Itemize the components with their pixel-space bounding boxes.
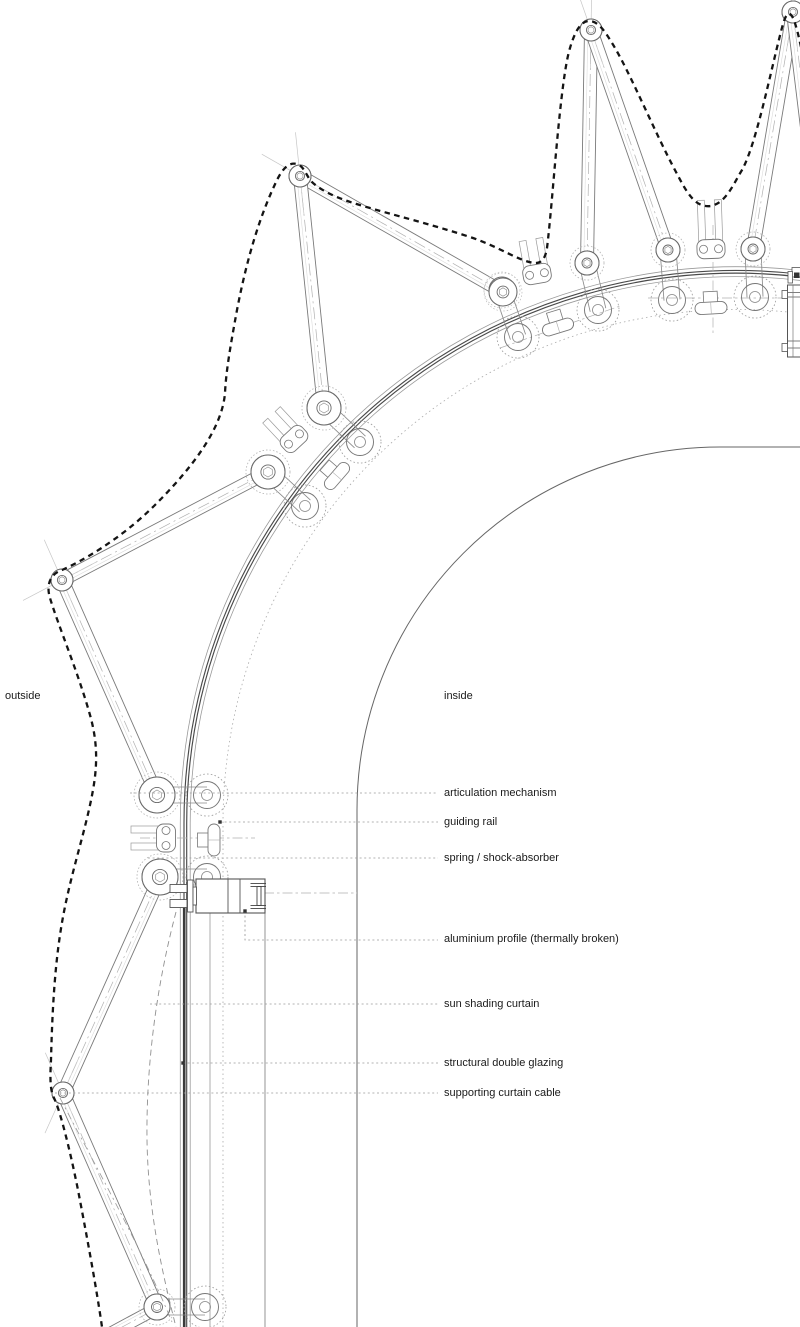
spring-shock-absorber — [314, 453, 352, 492]
rail-roller-ring — [651, 279, 693, 321]
rail-roller — [659, 287, 686, 314]
rail-roller-axle — [200, 1302, 211, 1313]
label-articulation-mechanism: articulation mechanism — [444, 787, 557, 799]
label-inside: inside — [444, 690, 473, 702]
fork-plate — [277, 423, 310, 456]
rail-end-cap — [794, 273, 800, 279]
arm-highlight-3 — [59, 581, 154, 796]
label-structural-double-glazing: structural double glazing — [444, 1057, 563, 1069]
fork-strip — [714, 200, 723, 244]
edge-bracket-tab — [782, 291, 788, 299]
rail-roller — [742, 284, 769, 311]
label-supporting-curtain-cable: supporting curtain cable — [444, 1087, 561, 1099]
spring-shock-absorber — [198, 824, 221, 856]
leader-aluminium-profile — [245, 911, 438, 940]
leader-marker-aluminium-profile — [243, 909, 246, 912]
label-guiding-rail: guiding rail — [444, 816, 497, 828]
curtain-fork-bracket — [261, 405, 310, 455]
leader-marker-structural-double-glazing — [181, 1061, 184, 1064]
rail-roller-axle — [750, 292, 761, 303]
profile-clamp-part — [188, 880, 194, 912]
arm-highlight-4 — [66, 878, 163, 1094]
rail-roller-axle — [355, 437, 366, 448]
edge-bracket-tab — [788, 272, 793, 284]
profile-clamp-part — [193, 887, 197, 905]
rail-roller-axle — [667, 295, 678, 306]
arm-highlight-5 — [60, 1094, 154, 1308]
rail-roller-axle — [593, 305, 604, 316]
edge-bracket-body — [788, 285, 800, 357]
spring-tab — [198, 833, 209, 847]
inner-wall-line — [357, 447, 800, 1327]
curtain-fork-bracket — [695, 200, 725, 259]
rail-roller — [194, 782, 221, 809]
rail-roller — [585, 297, 612, 324]
label-aluminium-profile: aluminium profile (thermally broken) — [444, 933, 619, 945]
profile-clamp-part — [170, 885, 187, 893]
spring-tab — [703, 291, 718, 303]
rail-roller-ring — [186, 774, 228, 816]
fork-plate — [157, 824, 176, 852]
rail-roller — [505, 324, 532, 351]
label-spring-shock-absorber: spring / shock-absorber — [444, 852, 559, 864]
edge-bracket-tab — [782, 344, 788, 352]
spring-shock-absorber — [694, 291, 727, 315]
spring-shock-absorber — [538, 307, 575, 338]
fork-plate — [697, 239, 726, 259]
facade-detail-drawing: outsideinsidearticulation mechanismguidi… — [0, 0, 800, 1327]
facade-section-svg: outsideinsidearticulation mechanismguidi… — [0, 0, 800, 1327]
rail-roller-axle — [300, 501, 311, 512]
rail-roller — [292, 493, 319, 520]
leader-marker-guiding-rail — [218, 820, 221, 823]
sun-shading-curtain-line — [147, 912, 176, 1327]
deployed-envelope-dashed — [49, 14, 800, 1327]
arm-highlight-7 — [588, 31, 665, 251]
rail-roller-axle — [513, 332, 524, 343]
rail-roller-axle — [202, 790, 213, 801]
aluminium-profile-body — [196, 879, 265, 913]
arm-highlight-8 — [750, 11, 790, 248]
label-sun-shading-curtain: sun shading curtain — [444, 998, 539, 1010]
rail-roller — [192, 1294, 219, 1321]
rail-roller — [347, 429, 374, 456]
rail-roller-ring — [734, 276, 776, 318]
profile-clamp-part — [170, 900, 187, 908]
arm-highlight-2 — [63, 475, 269, 583]
label-outside: outside — [5, 690, 40, 702]
dotted-projection-arc — [223, 309, 799, 1327]
